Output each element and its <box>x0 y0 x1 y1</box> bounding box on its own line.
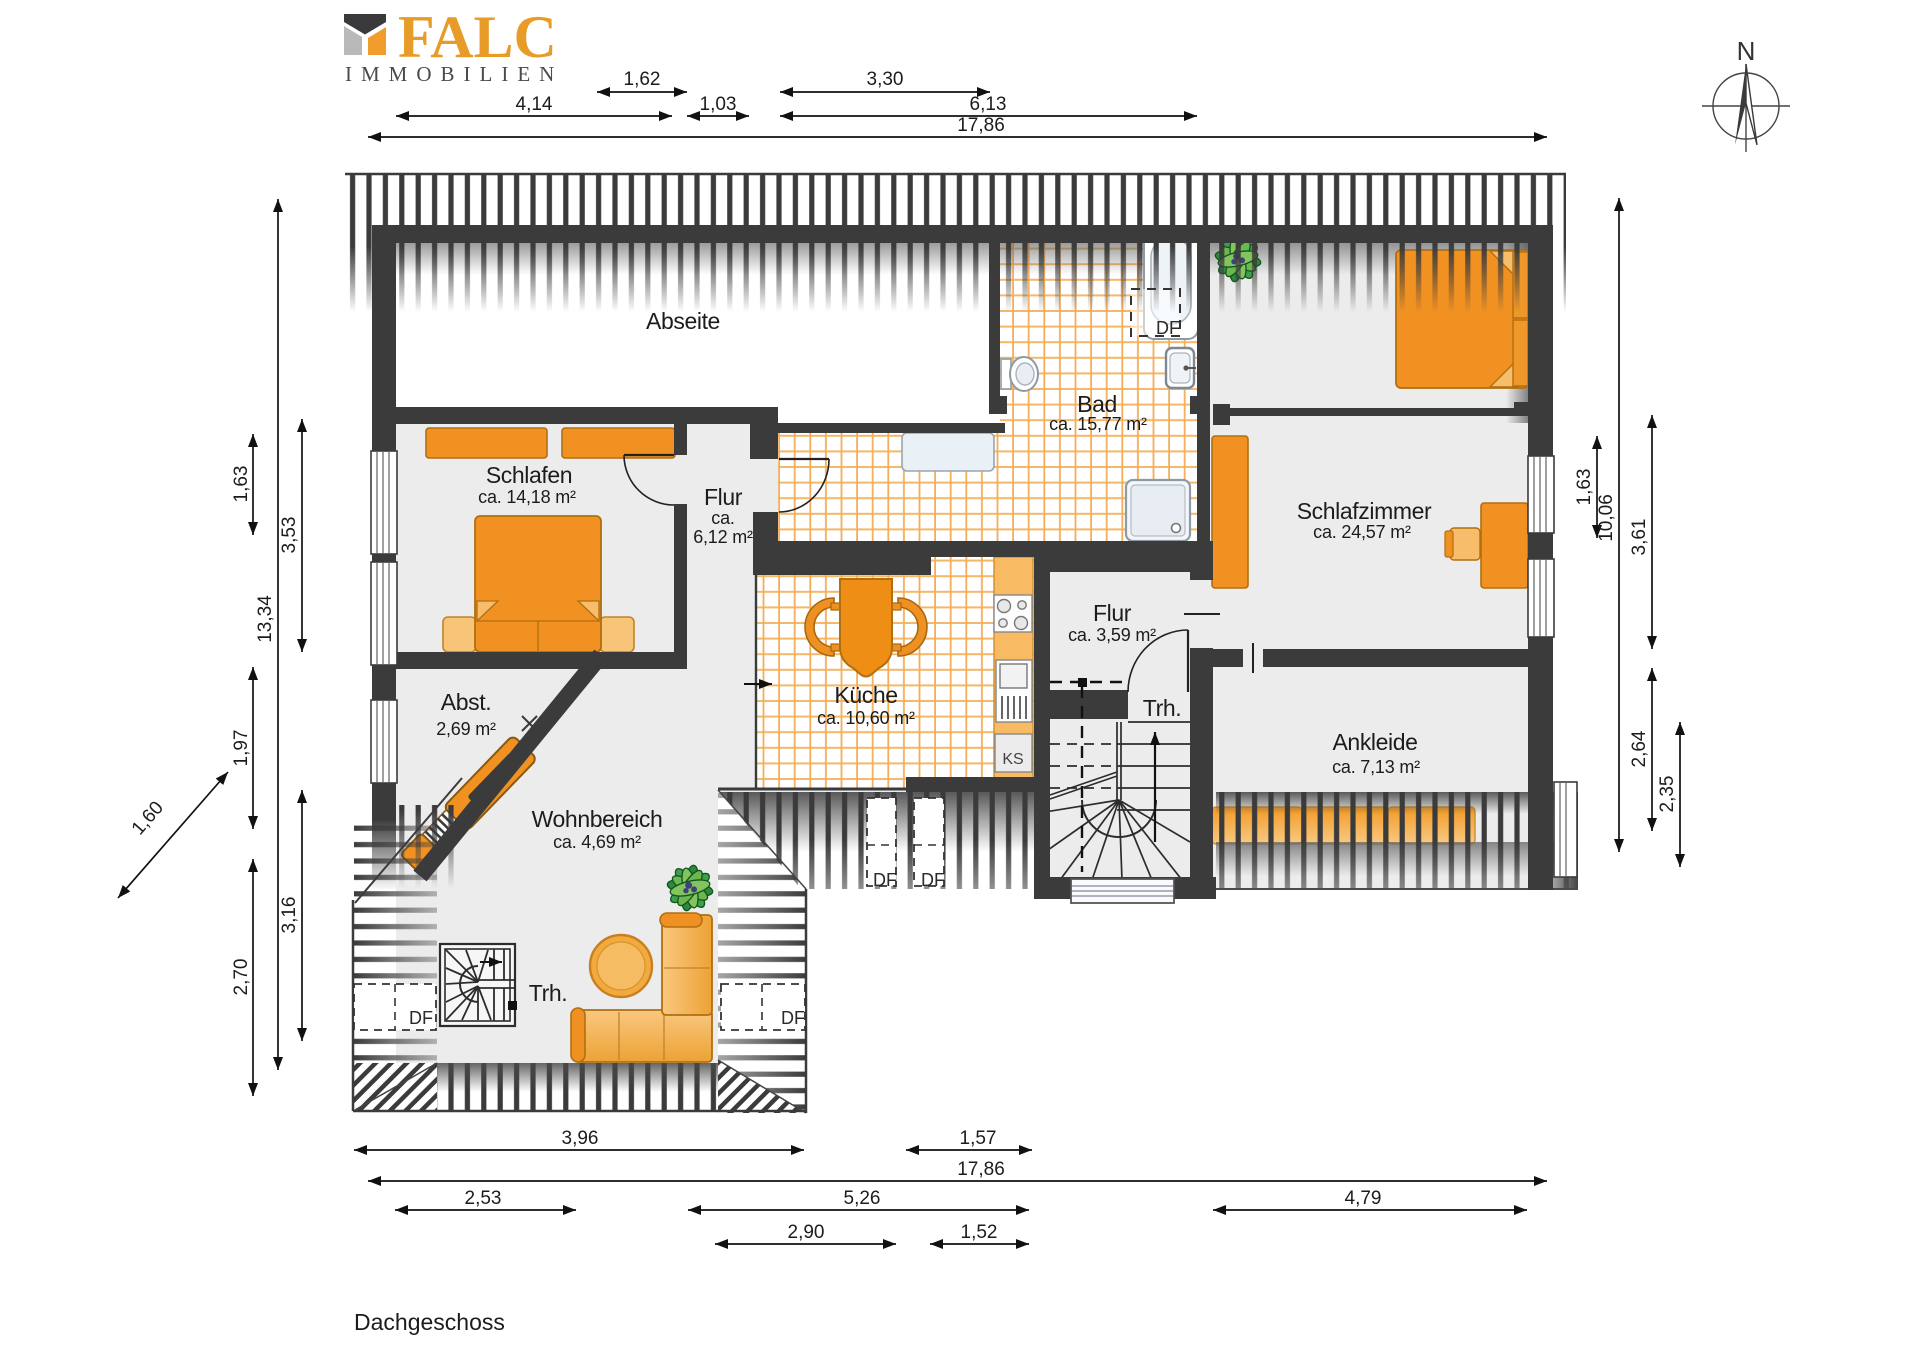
svg-text:N: N <box>1737 36 1756 66</box>
svg-text:3,30: 3,30 <box>867 69 904 90</box>
svg-text:2,53: 2,53 <box>465 1188 502 1209</box>
svg-text:DF: DF <box>873 870 897 890</box>
svg-text:6,13: 6,13 <box>970 94 1007 115</box>
svg-text:ca. 15,77 m²: ca. 15,77 m² <box>1049 414 1147 434</box>
svg-text:ca. 10,60 m²: ca. 10,60 m² <box>817 708 915 728</box>
svg-text:17,86: 17,86 <box>957 1159 1005 1180</box>
svg-text:2,69 m²: 2,69 m² <box>436 719 496 739</box>
svg-text:1,03: 1,03 <box>700 94 737 115</box>
svg-text:3,61: 3,61 <box>1629 519 1650 556</box>
svg-text:KS: KS <box>1002 751 1023 768</box>
svg-text:Küche: Küche <box>834 682 897 708</box>
svg-text:1,63: 1,63 <box>231 466 252 503</box>
svg-text:13,34: 13,34 <box>255 595 276 643</box>
svg-text:10,06: 10,06 <box>1596 494 1617 542</box>
svg-text:ca. 7,13 m²: ca. 7,13 m² <box>1332 757 1420 777</box>
svg-text:Trh.: Trh. <box>529 980 567 1006</box>
svg-text:DF: DF <box>409 1008 433 1028</box>
svg-text:2,90: 2,90 <box>788 1222 825 1243</box>
svg-text:1,57: 1,57 <box>960 1128 997 1149</box>
svg-text:DF: DF <box>781 1008 805 1028</box>
svg-text:3,96: 3,96 <box>562 1128 599 1149</box>
svg-text:2,35: 2,35 <box>1657 776 1678 813</box>
svg-text:IMMOBILIEN: IMMOBILIEN <box>345 62 563 86</box>
svg-text:Wohnbereich: Wohnbereich <box>532 806 663 832</box>
svg-text:3,16: 3,16 <box>279 897 300 934</box>
svg-text:Flur: Flur <box>1093 600 1132 626</box>
svg-text:2,64: 2,64 <box>1629 730 1650 767</box>
svg-text:1,97: 1,97 <box>231 730 252 767</box>
svg-text:Abseite: Abseite <box>646 308 720 334</box>
svg-text:Schlafzimmer: Schlafzimmer <box>1297 498 1432 524</box>
svg-text:1,63: 1,63 <box>1574 469 1595 506</box>
svg-text:Schlafen: Schlafen <box>486 462 572 488</box>
svg-text:ca. 24,57 m²: ca. 24,57 m² <box>1313 522 1411 542</box>
svg-text:ca.: ca. <box>711 508 734 528</box>
svg-text:2,70: 2,70 <box>231 959 252 996</box>
svg-text:ca. 14,18 m²: ca. 14,18 m² <box>478 487 576 507</box>
svg-text:FALC: FALC <box>398 4 557 70</box>
svg-text:Abst.: Abst. <box>441 689 491 715</box>
svg-text:17,86: 17,86 <box>957 115 1005 136</box>
svg-text:Flur: Flur <box>704 484 743 510</box>
svg-text:DF: DF <box>921 870 945 890</box>
svg-text:5,26: 5,26 <box>844 1188 881 1209</box>
svg-text:Dachgeschoss: Dachgeschoss <box>354 1309 505 1335</box>
svg-text:ca. 3,59 m²: ca. 3,59 m² <box>1068 625 1156 645</box>
svg-text:Trh.: Trh. <box>1143 695 1181 721</box>
svg-text:ca. 4,69 m²: ca. 4,69 m² <box>553 832 641 852</box>
svg-text:1,52: 1,52 <box>961 1222 998 1243</box>
svg-text:4,79: 4,79 <box>1345 1188 1382 1209</box>
svg-text:6,12 m²: 6,12 m² <box>693 527 753 547</box>
svg-text:Ankleide: Ankleide <box>1332 729 1417 755</box>
svg-text:1,62: 1,62 <box>624 69 661 90</box>
svg-text:3,53: 3,53 <box>279 517 300 554</box>
svg-text:4,14: 4,14 <box>516 94 553 115</box>
